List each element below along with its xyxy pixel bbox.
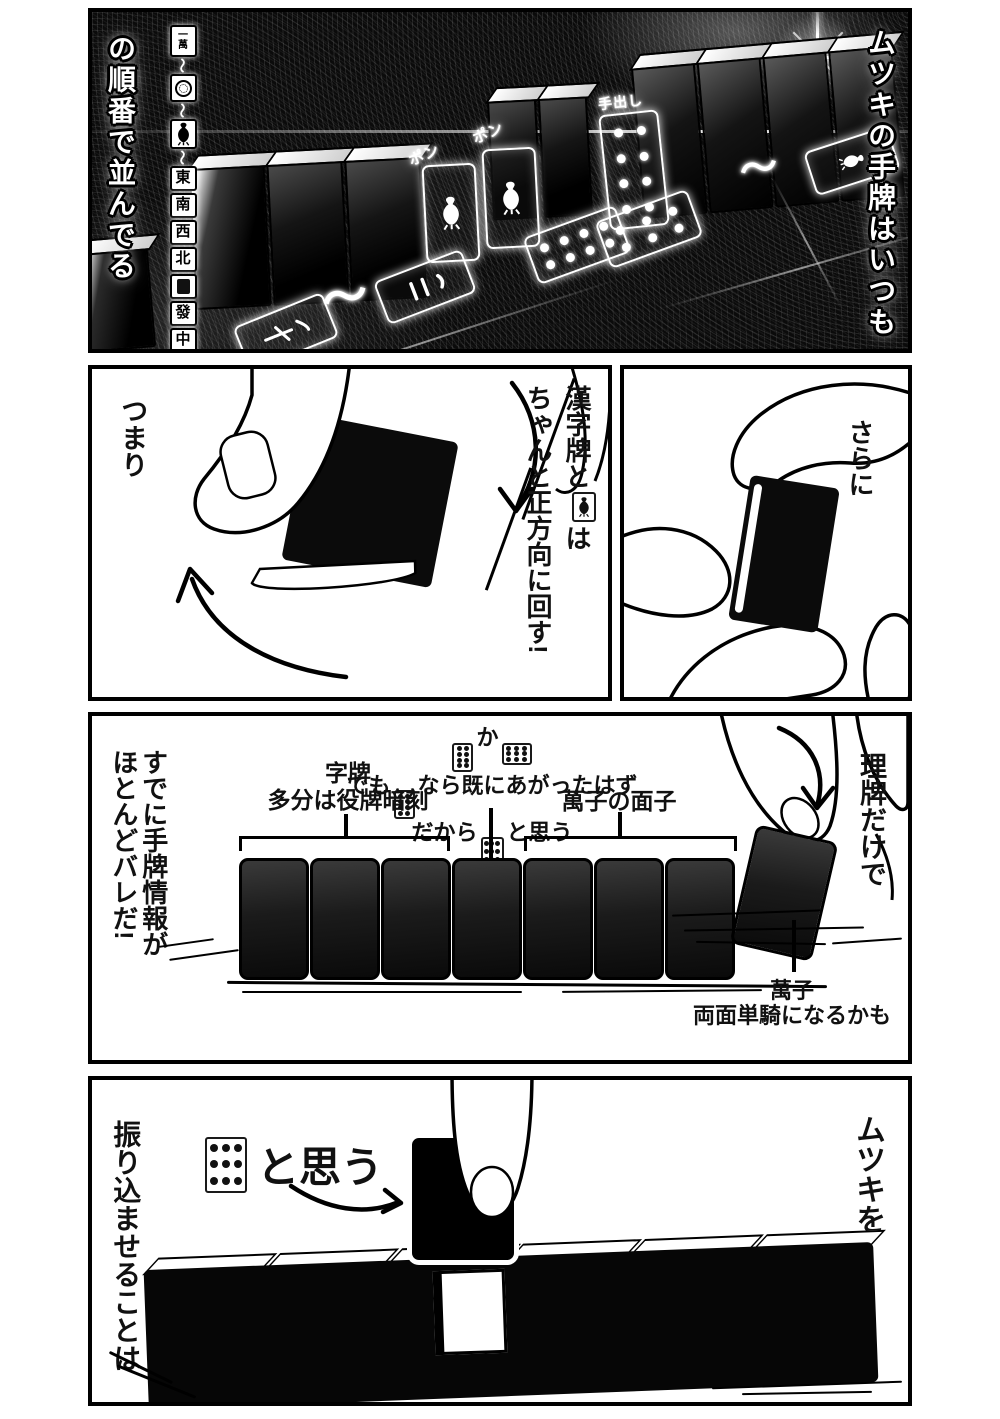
sou1-bird-icon — [575, 495, 593, 519]
order-tile-sou1 — [170, 119, 197, 149]
panel-3: すでに手牌情報が ほとんどバレだ! 理牌だけで か でもなら既にあがったはず だ… — [88, 712, 912, 1064]
fingertip-drawing — [430, 1078, 540, 1243]
sketch-line — [169, 949, 239, 961]
tile-glyph-icon — [254, 310, 319, 353]
order-tilde: 〜 — [175, 150, 190, 165]
order-tile-haku — [170, 274, 197, 299]
tile-bottom-edge — [251, 561, 417, 589]
text-run: ちゃんと正方向に回す! — [523, 385, 553, 654]
pon-tile-1sou — [481, 147, 540, 250]
finger-outline — [195, 369, 350, 533]
order-tile-text: 東 — [170, 166, 197, 191]
facedown-hand-row — [239, 858, 735, 980]
raised-tile-slot — [433, 1269, 508, 1355]
note-line: 漢字牌とは — [557, 385, 596, 654]
arrowhead-icon — [383, 1190, 401, 1212]
panel3-caption-left: すでに手牌情報が ほとんどバレだ! — [108, 749, 168, 957]
panel-2-right: さらに — [620, 365, 912, 701]
panel1-caption-left: の順番で並んでる — [106, 34, 134, 282]
hand-tile — [594, 858, 664, 980]
pinky-outline — [865, 615, 912, 701]
tile-row-front — [144, 1242, 879, 1406]
sou1-bird-icon — [435, 192, 467, 234]
lower-finger-outline — [664, 625, 845, 701]
jihai-annotation: 字牌 多分は役牌暗刻 — [212, 760, 484, 814]
caption-line: すでに手牌情報が — [138, 749, 168, 957]
tedashi-tile-8pin — [598, 109, 670, 231]
text-run: 漢字牌と — [562, 385, 592, 489]
mahjong-sou1-icon — [572, 492, 596, 522]
panel4-caption-left: 振り込ませることは — [109, 1120, 141, 1372]
annotation-line: 多分は役牌暗刻 — [212, 787, 484, 814]
panel2r-caption: さらに — [844, 419, 874, 497]
order-tile-text: 南 — [170, 193, 197, 218]
sou1-bird-icon — [495, 177, 527, 219]
order-tile-man1: 一萬 — [170, 25, 197, 57]
arrow-drawing — [767, 724, 847, 819]
bracket-jihai — [239, 836, 450, 851]
order-tile-pin1 — [170, 74, 197, 102]
note-line: ちゃんと正方向に回す! — [518, 385, 557, 654]
hand-tile — [665, 858, 735, 980]
sketch-line — [742, 1391, 872, 1395]
rotate-arrow-up — [192, 579, 346, 677]
panel-4: ムツキを 振り込ませることは と思う — [88, 1076, 912, 1406]
manga-page: 〜 〜 ポン ポン 手出し ムツキの手牌はいつも の順番で並んでる 一 — [0, 0, 1000, 1419]
pin-dots — [606, 117, 662, 223]
middle-pointer — [489, 808, 493, 858]
hand-tile — [523, 858, 593, 980]
order-tile-text: 發 — [170, 301, 197, 326]
sou1-bird-icon — [172, 121, 195, 147]
hand-tile — [239, 858, 309, 980]
pin1-circle-icon — [175, 80, 192, 97]
order-tile-text: 中 — [170, 328, 197, 353]
hand-tile — [452, 858, 522, 980]
text-run: か — [476, 725, 498, 750]
sou1-bird-icon — [835, 146, 868, 176]
caption-line: ほとんどバレだ! — [108, 749, 138, 957]
panel3-caption-right: 理牌だけで — [855, 752, 886, 887]
panel4-caption-right: ムツキを — [850, 1114, 885, 1234]
panel1-caption-right: ムツキの手牌はいつも — [866, 28, 894, 338]
mahjong-pin9-icon — [205, 1137, 247, 1193]
bracket-pointer — [618, 812, 622, 838]
annotation-line: 両面単騎になるかも — [647, 1003, 912, 1028]
sou1-bird-icon — [435, 192, 467, 234]
hand-tile — [381, 858, 451, 980]
order-tile-text: 西 — [170, 220, 197, 245]
mahjong-pin9h-icon — [502, 743, 532, 765]
thumb-outline — [624, 529, 730, 616]
arrow-drawing — [287, 1178, 407, 1223]
manzu-annotation: 萬子の面子 — [509, 782, 729, 816]
panel2l-note: 漢字牌とは ちゃんと正方向に回す! — [518, 385, 596, 654]
glow-tilde: 〜 — [736, 146, 781, 191]
order-tile-text: 北 — [170, 247, 197, 272]
sou1-bird-icon — [835, 146, 868, 176]
bracket-pointer — [344, 814, 348, 838]
annotation-line: 字牌 — [212, 760, 484, 787]
pon-tile-1sou — [421, 163, 480, 264]
panel-2-left: つまり 漢字牌とは ちゃんと正方向に回す! — [88, 365, 612, 701]
fingernail — [471, 1167, 513, 1217]
tile-order-strip: 一萬〜〜〜東南西北發中 — [166, 24, 200, 353]
second-finger-line — [595, 369, 610, 481]
tile-glyph-icon — [393, 265, 458, 309]
sketch-line — [242, 991, 522, 993]
order-tilde: 〜 — [175, 58, 190, 73]
text-run: は — [562, 525, 592, 551]
annotation-line: 萬子 — [647, 978, 912, 1003]
bracket-manzu — [524, 836, 737, 851]
hand-tile — [310, 858, 380, 980]
order-tilde: 〜 — [175, 103, 190, 118]
tanki-annotation: 萬子 両面単騎になるかも — [647, 978, 912, 1028]
haku-rectangle-icon — [177, 279, 190, 294]
panel-1: 〜 〜 ポン ポン 手出し ムツキの手牌はいつも の順番で並んでる 一 — [88, 8, 912, 353]
tanki-pointer — [792, 920, 796, 972]
sou1-bird-icon — [495, 177, 527, 219]
index-finger-outline — [732, 384, 912, 489]
